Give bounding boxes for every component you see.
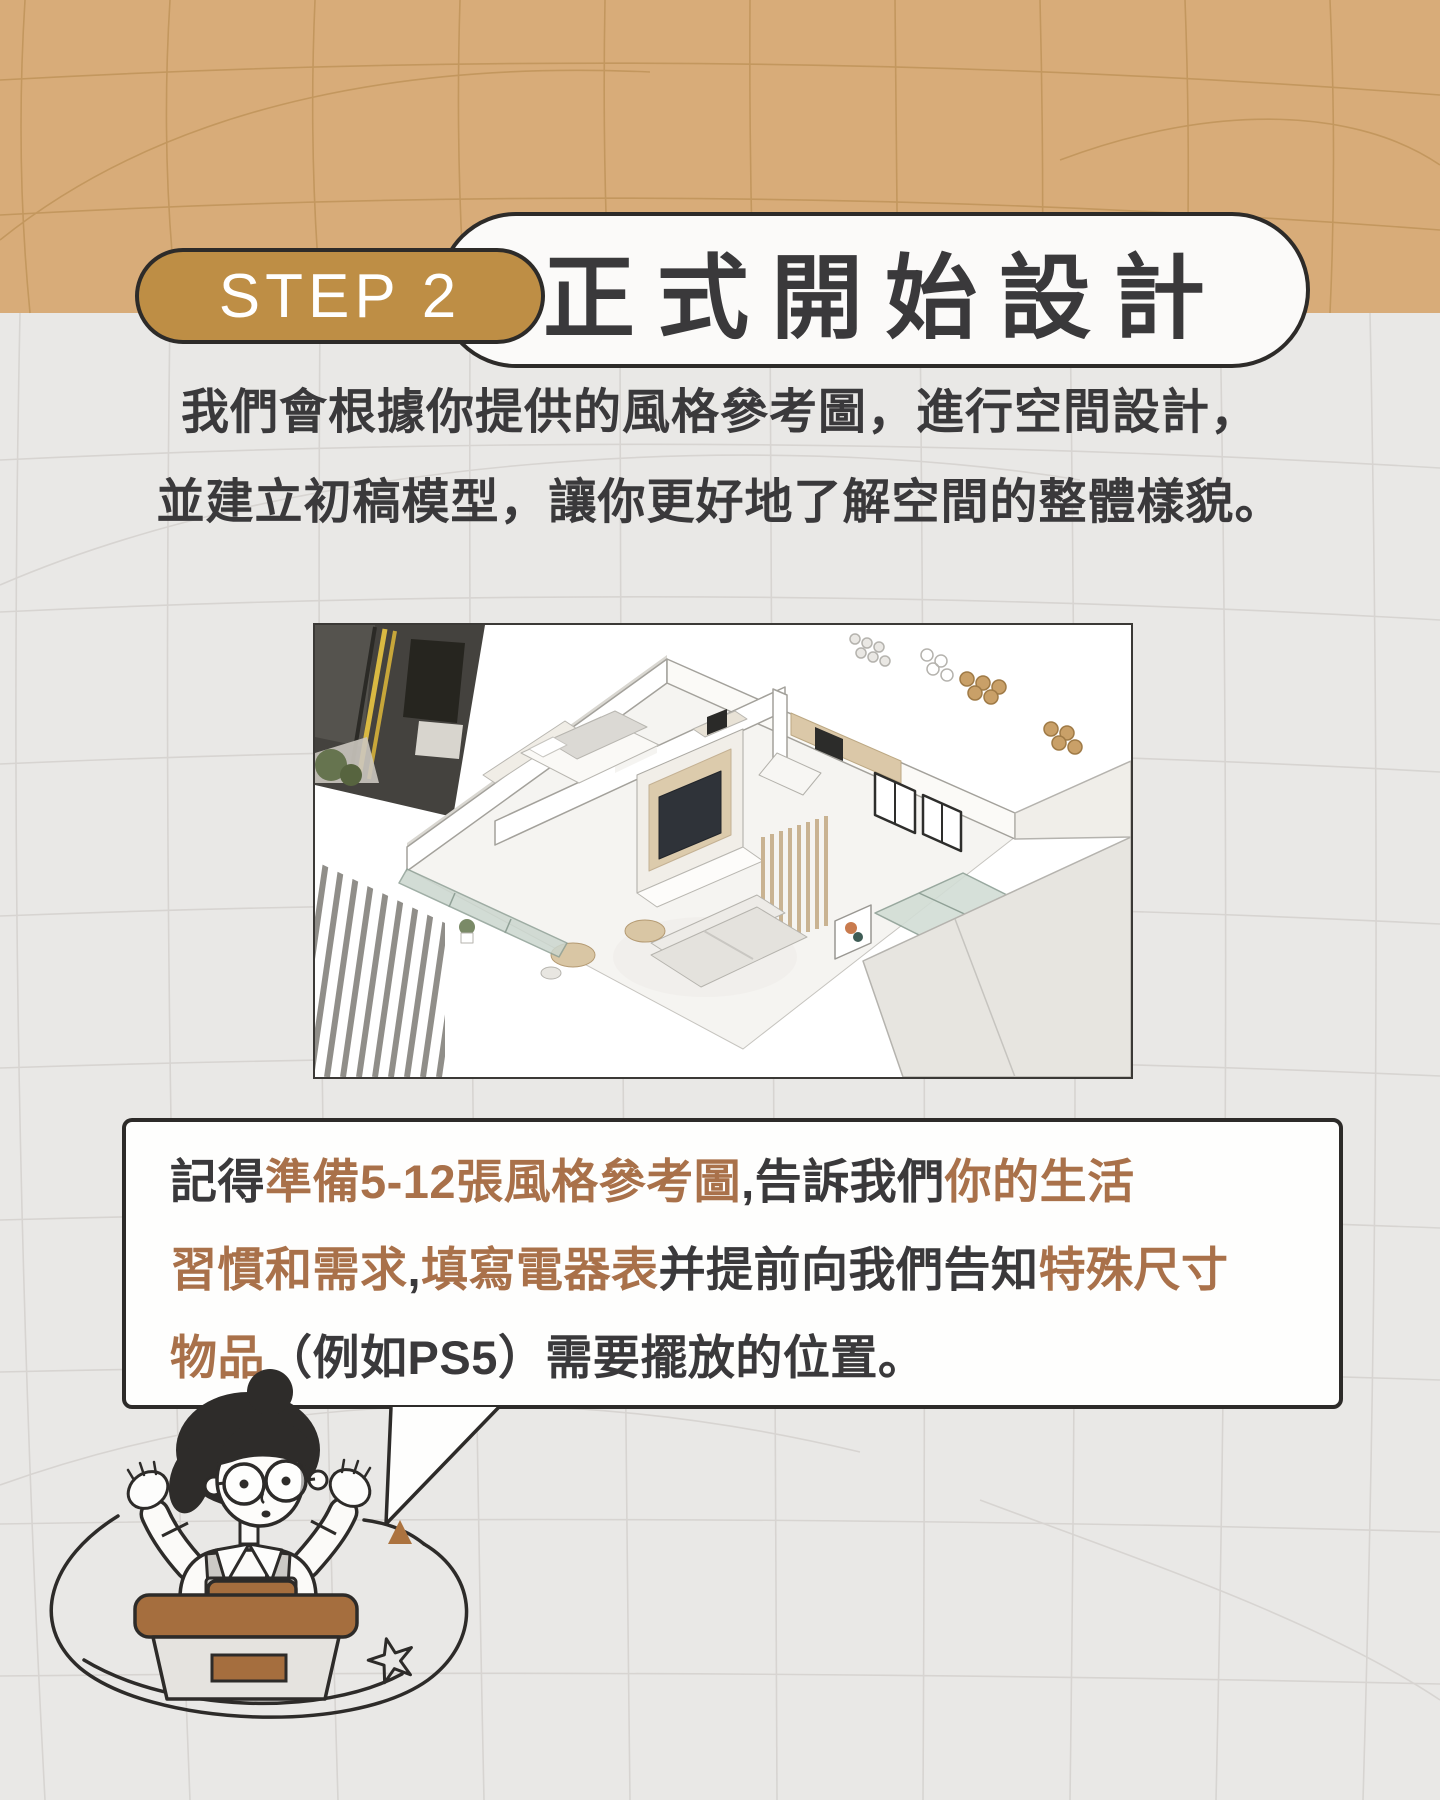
title-card: 正式開始設計 xyxy=(438,212,1310,368)
bubble-line: 習慣和需求,填寫電器表并提前向我們告知特殊尺寸 xyxy=(170,1226,1339,1314)
bubble-segment: 記得 xyxy=(170,1155,265,1208)
speech-bubble: 記得準備5-12張風格參考圖,告訴我們你的生活 習慣和需求,填寫電器表并提前向我… xyxy=(122,1118,1343,1409)
bubble-line: 記得準備5-12張風格參考圖,告訴我們你的生活 xyxy=(170,1138,1339,1226)
intro-line-1: 我們會根據你提供的風格參考圖，進行空間設計， xyxy=(0,372,1440,442)
page-title: 正式開始設計 xyxy=(521,224,1227,357)
bubble-segment: ,告訴我們 xyxy=(741,1155,945,1208)
bubble-segment: 填寫電器表 xyxy=(421,1243,659,1296)
apartment-3d-render xyxy=(313,623,1133,1079)
reception-desk xyxy=(135,1578,357,1699)
bubble-segment: , xyxy=(408,1243,422,1296)
bubble-segment: 準備5-12張風格參考圖 xyxy=(265,1155,741,1208)
designer-mascot xyxy=(20,1368,520,1768)
intro-line-2: 並建立初稿模型，讓你更好地了解空間的整體樣貌。 xyxy=(0,462,1440,532)
infographic-page: 正式開始設計 STEP 2 我們會根據你提供的風格參考圖，進行空間設計， 並建立… xyxy=(0,0,1440,1800)
mouth xyxy=(262,1511,271,1518)
hair-bun xyxy=(247,1369,293,1415)
bubble-segment: 你的生活 xyxy=(945,1155,1135,1208)
step-badge: STEP 2 xyxy=(135,248,545,344)
bubble-segment: 習慣和需求 xyxy=(170,1243,408,1296)
bubble-segment: 特殊尺寸 xyxy=(1039,1243,1229,1296)
bubble-segment: 并提前向我們告知 xyxy=(659,1243,1039,1296)
step-badge-label: STEP 2 xyxy=(219,261,462,332)
